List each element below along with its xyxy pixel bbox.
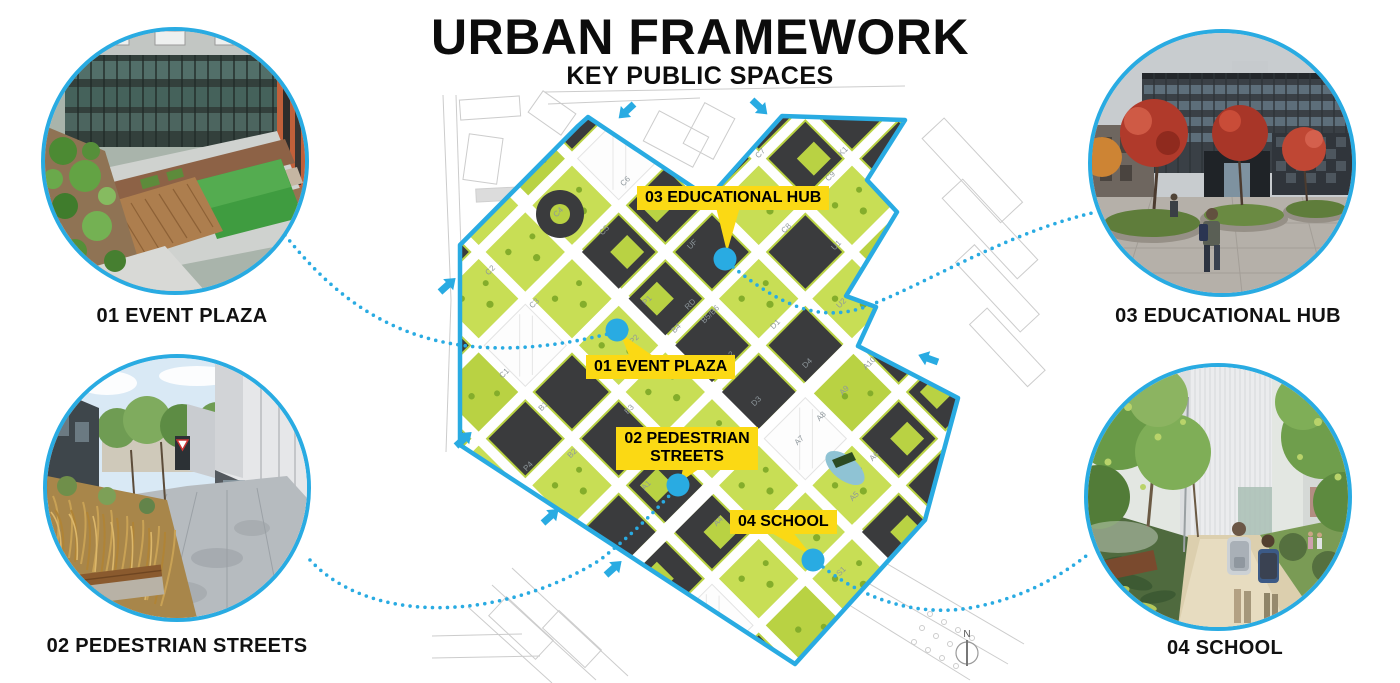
far-figure bbox=[1170, 194, 1178, 218]
callout-pedestrian-streets: 02 PEDESTRIAN STREETS bbox=[616, 427, 758, 470]
photo-educational-hub bbox=[1088, 29, 1356, 297]
event-plaza-scene bbox=[45, 31, 305, 291]
caption-event-plaza: 01 EVENT PLAZA bbox=[42, 305, 322, 328]
space-marker bbox=[714, 248, 737, 271]
caption-pedestrian-streets: 02 PEDESTRIAN STREETS bbox=[37, 635, 317, 658]
space-marker bbox=[667, 474, 690, 497]
space-marker bbox=[802, 549, 825, 572]
photo-pedestrian-street bbox=[43, 354, 311, 622]
pedestrian-street-scene bbox=[47, 358, 307, 618]
educational-hub-scene bbox=[1092, 33, 1352, 293]
photo-event-plaza bbox=[41, 27, 309, 295]
caption-educational-hub: 03 EDUCATIONAL HUB bbox=[1088, 305, 1368, 328]
callout-educational-hub: 03 EDUCATIONAL HUB bbox=[637, 186, 829, 210]
north-compass: N bbox=[956, 629, 978, 666]
callout-event-plaza: 01 EVENT PLAZA bbox=[586, 355, 735, 379]
space-marker bbox=[606, 319, 629, 342]
callout-school: 04 SCHOOL bbox=[730, 510, 837, 534]
caption-school: 04 SCHOOL bbox=[1085, 637, 1365, 660]
photo-school bbox=[1084, 363, 1352, 631]
svg-text:N: N bbox=[963, 629, 970, 640]
urban-framework-page: { "title": "URBAN FRAMEWORK", "subtitle"… bbox=[0, 0, 1400, 683]
school-scene bbox=[1088, 367, 1348, 627]
